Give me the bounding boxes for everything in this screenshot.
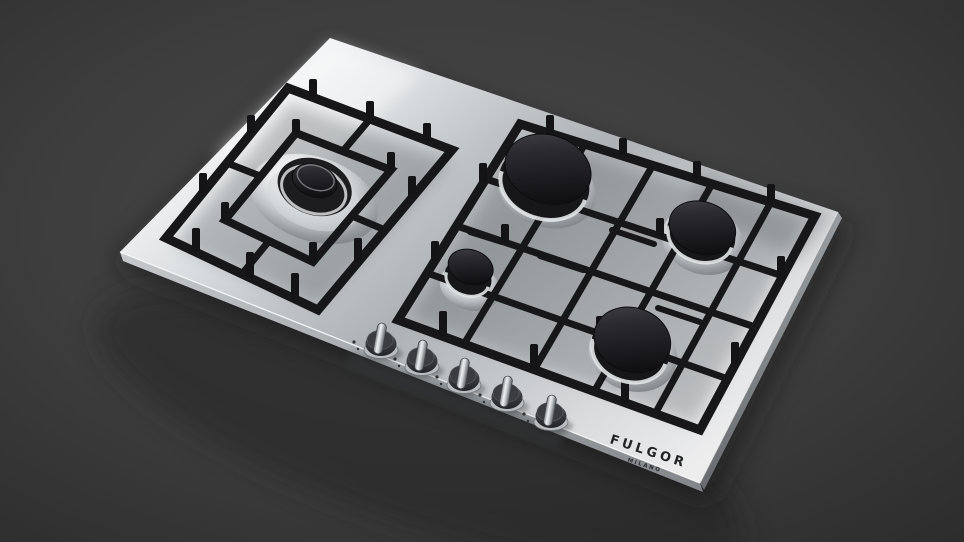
product-render-scene: FULGOR MILANO — [0, 0, 964, 542]
